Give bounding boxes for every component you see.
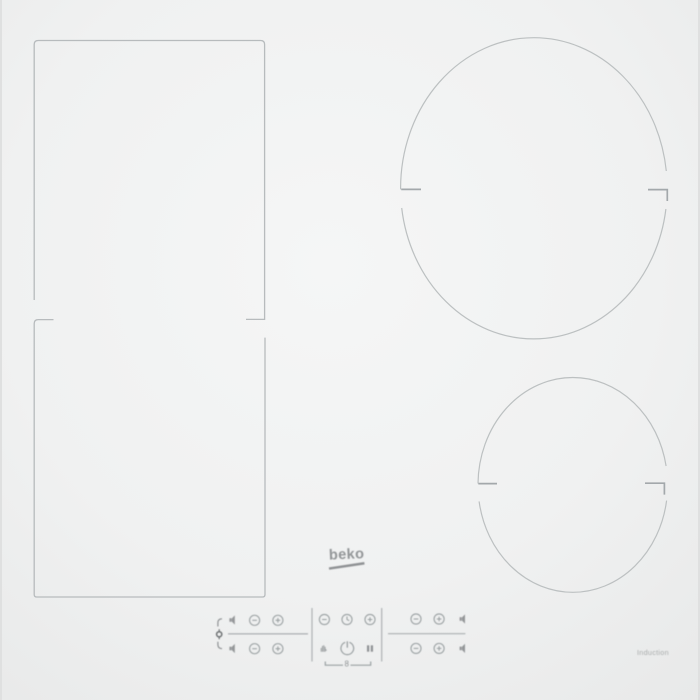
svg-text:Induction: Induction <box>637 648 669 657</box>
svg-text:beko: beko <box>329 546 365 564</box>
svg-text:8: 8 <box>345 659 350 668</box>
